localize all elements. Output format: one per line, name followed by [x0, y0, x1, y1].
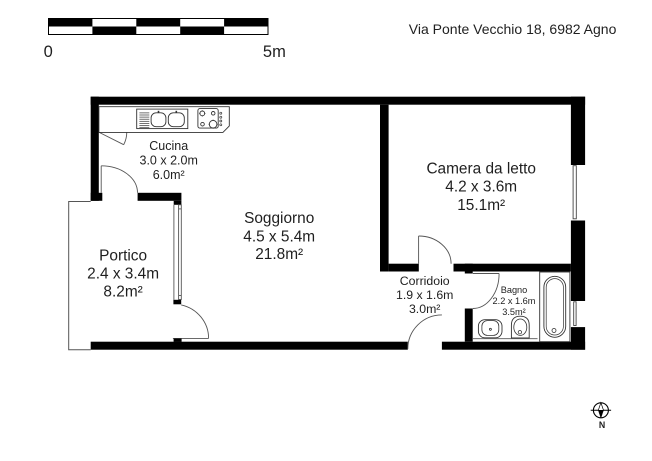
- svg-text:3.5m²: 3.5m²: [502, 307, 526, 317]
- svg-text:0: 0: [44, 43, 53, 61]
- svg-text:Soggiorno: Soggiorno: [244, 210, 314, 227]
- svg-text:4.2 x 3.6m: 4.2 x 3.6m: [445, 179, 517, 196]
- svg-text:2.2 x 1.6m: 2.2 x 1.6m: [493, 296, 536, 306]
- svg-text:Cucina: Cucina: [149, 139, 188, 153]
- svg-text:Camera da letto: Camera da letto: [426, 160, 536, 177]
- svg-text:1.9 x 1.6m: 1.9 x 1.6m: [396, 288, 453, 302]
- svg-text:21.8m²: 21.8m²: [255, 246, 303, 263]
- svg-text:Portico: Portico: [99, 248, 147, 265]
- svg-text:8.2m²: 8.2m²: [103, 283, 142, 300]
- svg-text:Corridoio: Corridoio: [400, 274, 450, 288]
- svg-text:3.0m²: 3.0m²: [409, 302, 440, 316]
- svg-text:Via Ponte Vecchio 18, 6982 Agn: Via Ponte Vecchio 18, 6982 Agno: [409, 21, 617, 37]
- svg-text:4.5 x 5.4m: 4.5 x 5.4m: [243, 229, 315, 246]
- svg-text:Bagno: Bagno: [501, 285, 528, 295]
- svg-text:6.0m²: 6.0m²: [153, 168, 185, 182]
- svg-text:5m: 5m: [263, 43, 286, 61]
- svg-text:15.1m²: 15.1m²: [457, 197, 505, 214]
- svg-text:N: N: [599, 420, 605, 430]
- svg-text:2.4 x 3.4m: 2.4 x 3.4m: [87, 266, 159, 283]
- svg-text:3.0 x 2.0m: 3.0 x 2.0m: [140, 153, 198, 167]
